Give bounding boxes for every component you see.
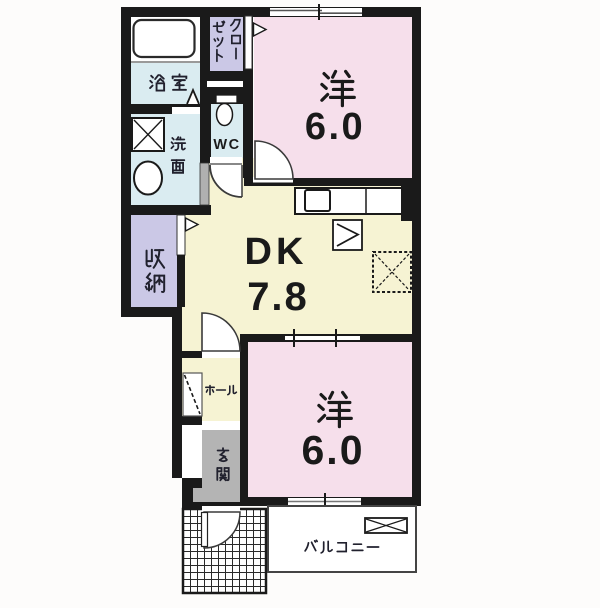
svg-text:DK: DK (245, 231, 308, 273)
svg-text:6.0: 6.0 (305, 106, 365, 148)
svg-text:7.8: 7.8 (247, 275, 309, 319)
svg-text:WC: WC (213, 137, 240, 153)
svg-text:6.0: 6.0 (302, 427, 365, 473)
